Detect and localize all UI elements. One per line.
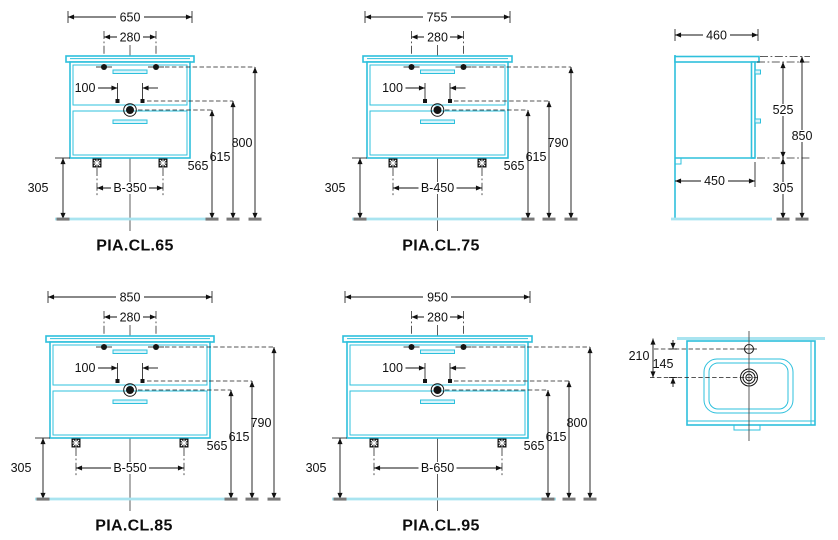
dims-heights: 565 615 790 xyxy=(504,67,571,219)
dim-label-h-mid: 615 xyxy=(229,430,250,444)
dim-label-floor-clearance: 305 xyxy=(325,181,346,195)
dim-label-feet-spacing: B-550 xyxy=(113,461,146,475)
floor-line xyxy=(332,498,597,501)
dim-feet-spacing: B-550 xyxy=(76,461,184,475)
model-label: PIA.CL.65 xyxy=(96,238,173,255)
dim-label-fixing: 100 xyxy=(75,361,96,375)
countertop-side xyxy=(675,57,759,63)
dim-label-faucet-spacing: 280 xyxy=(120,31,141,45)
drawer-handle-bottom xyxy=(421,120,455,124)
dim-label-h-drain: 565 xyxy=(504,159,525,173)
dim-floor-clearance: 305 xyxy=(770,158,796,219)
drawer-handle-bottom xyxy=(421,400,455,404)
dim-label-total-height: 850 xyxy=(792,129,813,143)
dim-floor-clearance: 305 xyxy=(306,438,347,499)
side-view: 460 450 525 3 xyxy=(671,29,815,221)
dim-label-faucet-spacing: 280 xyxy=(120,311,141,325)
dim-overall-width: 950 xyxy=(345,291,530,305)
front-view-pia-cl-95: 950 280 100 xyxy=(306,291,597,535)
drawer-handle-top xyxy=(421,70,455,74)
foot-left xyxy=(370,439,379,477)
drawer-handle-bottom xyxy=(755,119,761,123)
dim-label-fixing: 100 xyxy=(382,81,403,95)
dim-overall-width: 755 xyxy=(365,11,510,25)
dims-heights: 565 615 800 xyxy=(188,67,255,219)
dim-depth-bottom: 450 xyxy=(675,162,755,188)
dim-label-floor-clearance: 305 xyxy=(11,461,32,475)
floor-line xyxy=(671,218,809,221)
dim-label-h-mid: 615 xyxy=(210,150,231,164)
dim-label-floor-clearance: 305 xyxy=(306,461,327,475)
dim-label-depth-top: 460 xyxy=(706,29,727,43)
dim-label-feet-spacing: B-650 xyxy=(421,461,454,475)
dim-faucet-to-drain: 145 xyxy=(653,340,677,387)
foot-left xyxy=(93,159,102,197)
dim-floor-clearance: 305 xyxy=(325,158,367,219)
dim-label-faucet-spacing: 280 xyxy=(427,311,448,325)
floor-line xyxy=(352,218,578,221)
technical-drawing-sheet: 650 280 100 xyxy=(0,0,838,540)
dim-feet-spacing: B-350 xyxy=(97,181,163,195)
dim-label-width: 850 xyxy=(120,291,141,305)
dim-label-back-to-drain: 210 xyxy=(629,349,650,363)
front-view-pia-cl-75: 755 280 100 xyxy=(325,11,578,255)
dim-label-h-drain: 565 xyxy=(207,439,228,453)
dim-floor-clearance: 305 xyxy=(11,438,50,499)
dim-feet-spacing: B-650 xyxy=(374,461,502,475)
floor-line xyxy=(55,218,262,221)
foot-left xyxy=(72,439,81,477)
dim-label-h-top: 790 xyxy=(251,416,272,430)
dim-label-h-top: 800 xyxy=(567,416,588,430)
dims-heights: 565 615 800 xyxy=(524,347,590,499)
dim-label-fixing: 100 xyxy=(75,81,96,95)
dim-label-feet-spacing: B-350 xyxy=(113,181,146,195)
dims-heights: 565 615 790 xyxy=(207,347,274,499)
dim-label-faucet-spacing: 280 xyxy=(427,31,448,45)
dim-label-body-height: 525 xyxy=(773,103,794,117)
cabinet-side xyxy=(675,55,761,219)
model-label: PIA.CL.75 xyxy=(402,238,479,255)
dim-label-h-top: 790 xyxy=(548,136,569,150)
dim-label-faucet-to-drain: 145 xyxy=(653,357,674,371)
drawer-handle-bottom xyxy=(113,400,147,404)
bottom-step xyxy=(675,158,681,164)
dim-depth-top: 460 xyxy=(675,29,758,43)
model-label: PIA.CL.95 xyxy=(402,518,479,535)
dim-label-h-mid: 615 xyxy=(546,430,567,444)
dim-label-h-drain: 565 xyxy=(524,439,545,453)
dim-label-width: 755 xyxy=(427,11,448,25)
drawer-handle-top xyxy=(113,70,147,74)
front-face xyxy=(752,62,756,158)
foot-right xyxy=(180,439,189,477)
dim-overall-width: 650 xyxy=(68,11,192,25)
dim-label-h-top: 800 xyxy=(232,136,253,150)
dim-overall-width: 850 xyxy=(48,291,212,305)
floor-line xyxy=(35,498,281,501)
model-label: PIA.CL.85 xyxy=(95,518,172,535)
foot-right xyxy=(498,439,507,477)
dim-body-height: 525 xyxy=(770,62,796,158)
drawer-handle-top xyxy=(113,350,147,354)
dim-back-to-drain: 210 xyxy=(629,339,653,378)
dim-label-h-drain: 565 xyxy=(188,159,209,173)
drawer-handle-top xyxy=(755,70,761,74)
dim-label-width: 950 xyxy=(427,291,448,305)
front-view-pia-cl-85: 850 280 100 xyxy=(11,291,281,535)
dim-label-width: 650 xyxy=(120,11,141,25)
dim-label-floor-clearance: 305 xyxy=(773,181,794,195)
drawer-handle-top xyxy=(421,350,455,354)
foot-right xyxy=(159,159,168,197)
dim-label-depth-bottom: 450 xyxy=(704,174,725,188)
dim-label-feet-spacing: B-450 xyxy=(421,181,454,195)
dim-label-h-mid: 615 xyxy=(526,150,547,164)
top-view: 210 145 xyxy=(629,331,825,441)
dim-floor-clearance: 305 xyxy=(28,158,70,219)
front-view-pia-cl-65: 650 280 100 xyxy=(28,11,262,255)
drawer-handle-bottom xyxy=(113,120,147,124)
foot-left xyxy=(389,159,398,197)
dim-label-fixing: 100 xyxy=(382,361,403,375)
dim-feet-spacing: B-450 xyxy=(393,181,482,195)
dim-label-floor-clearance: 305 xyxy=(28,181,49,195)
foot-right xyxy=(478,159,487,197)
technical-drawing-canvas: 650 280 100 xyxy=(0,0,838,540)
